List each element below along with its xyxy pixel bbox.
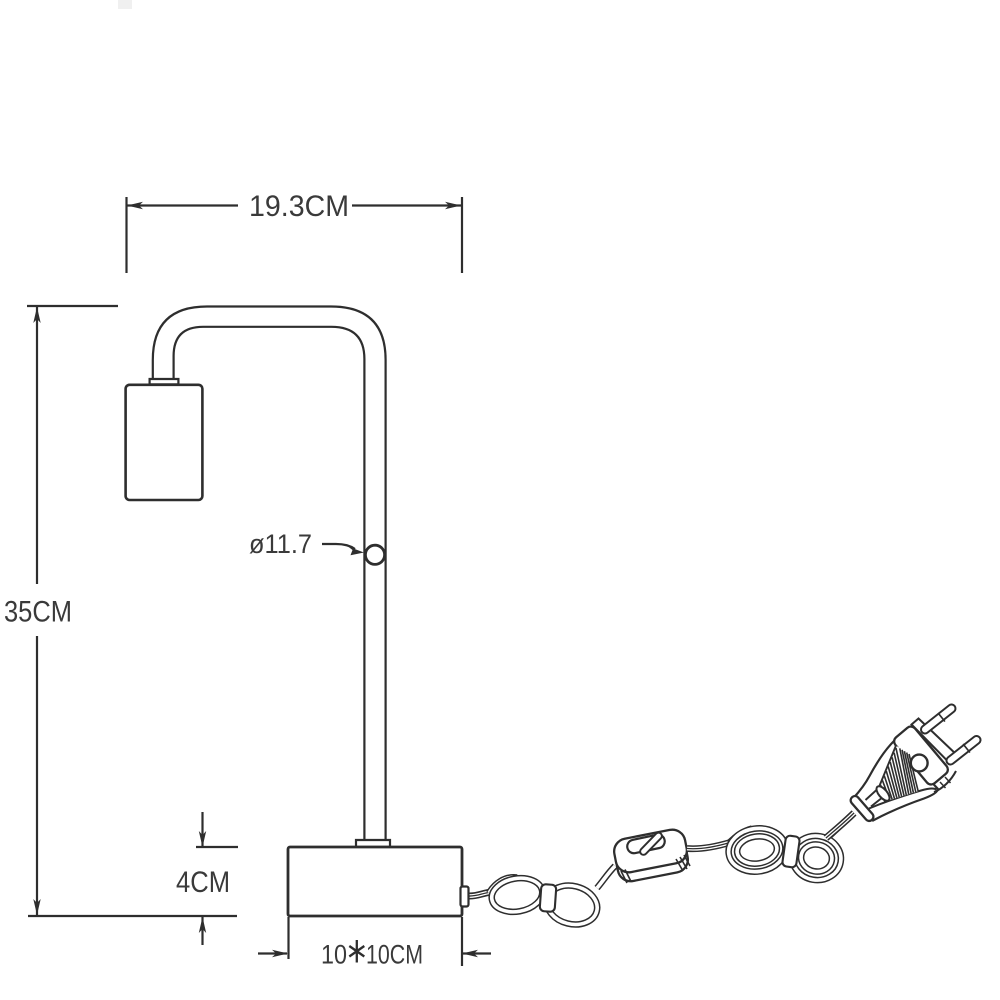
- svg-text:35CM: 35CM: [4, 596, 72, 629]
- svg-text:10: 10: [321, 940, 347, 970]
- svg-text:ø11.7: ø11.7: [249, 529, 312, 559]
- svg-text:19.3CM: 19.3CM: [249, 190, 349, 223]
- svg-text:4CM: 4CM: [176, 866, 230, 899]
- svg-text:10CM: 10CM: [366, 940, 423, 970]
